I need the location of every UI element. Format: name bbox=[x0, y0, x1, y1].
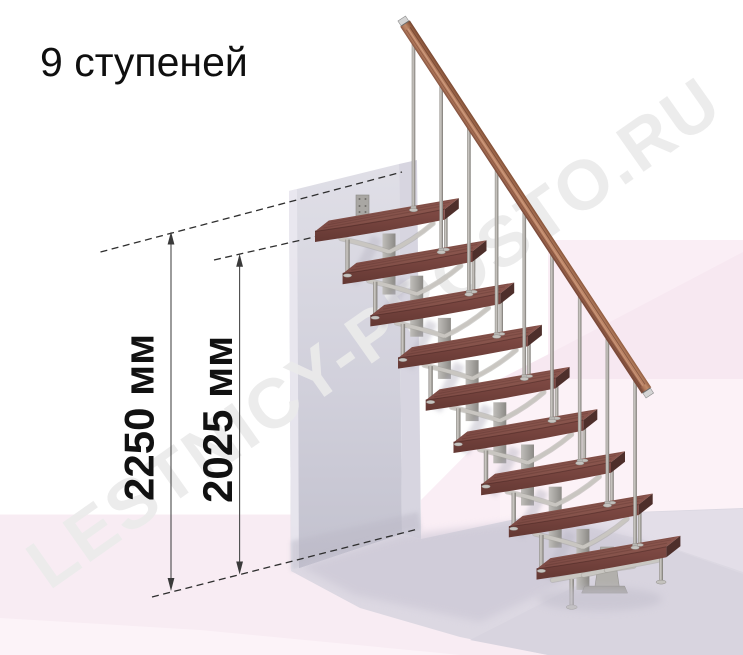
svg-text:2250 мм: 2250 мм bbox=[116, 334, 163, 501]
svg-text:9 ступеней: 9 ступеней bbox=[40, 39, 248, 85]
svg-text:2025 мм: 2025 мм bbox=[194, 336, 241, 503]
